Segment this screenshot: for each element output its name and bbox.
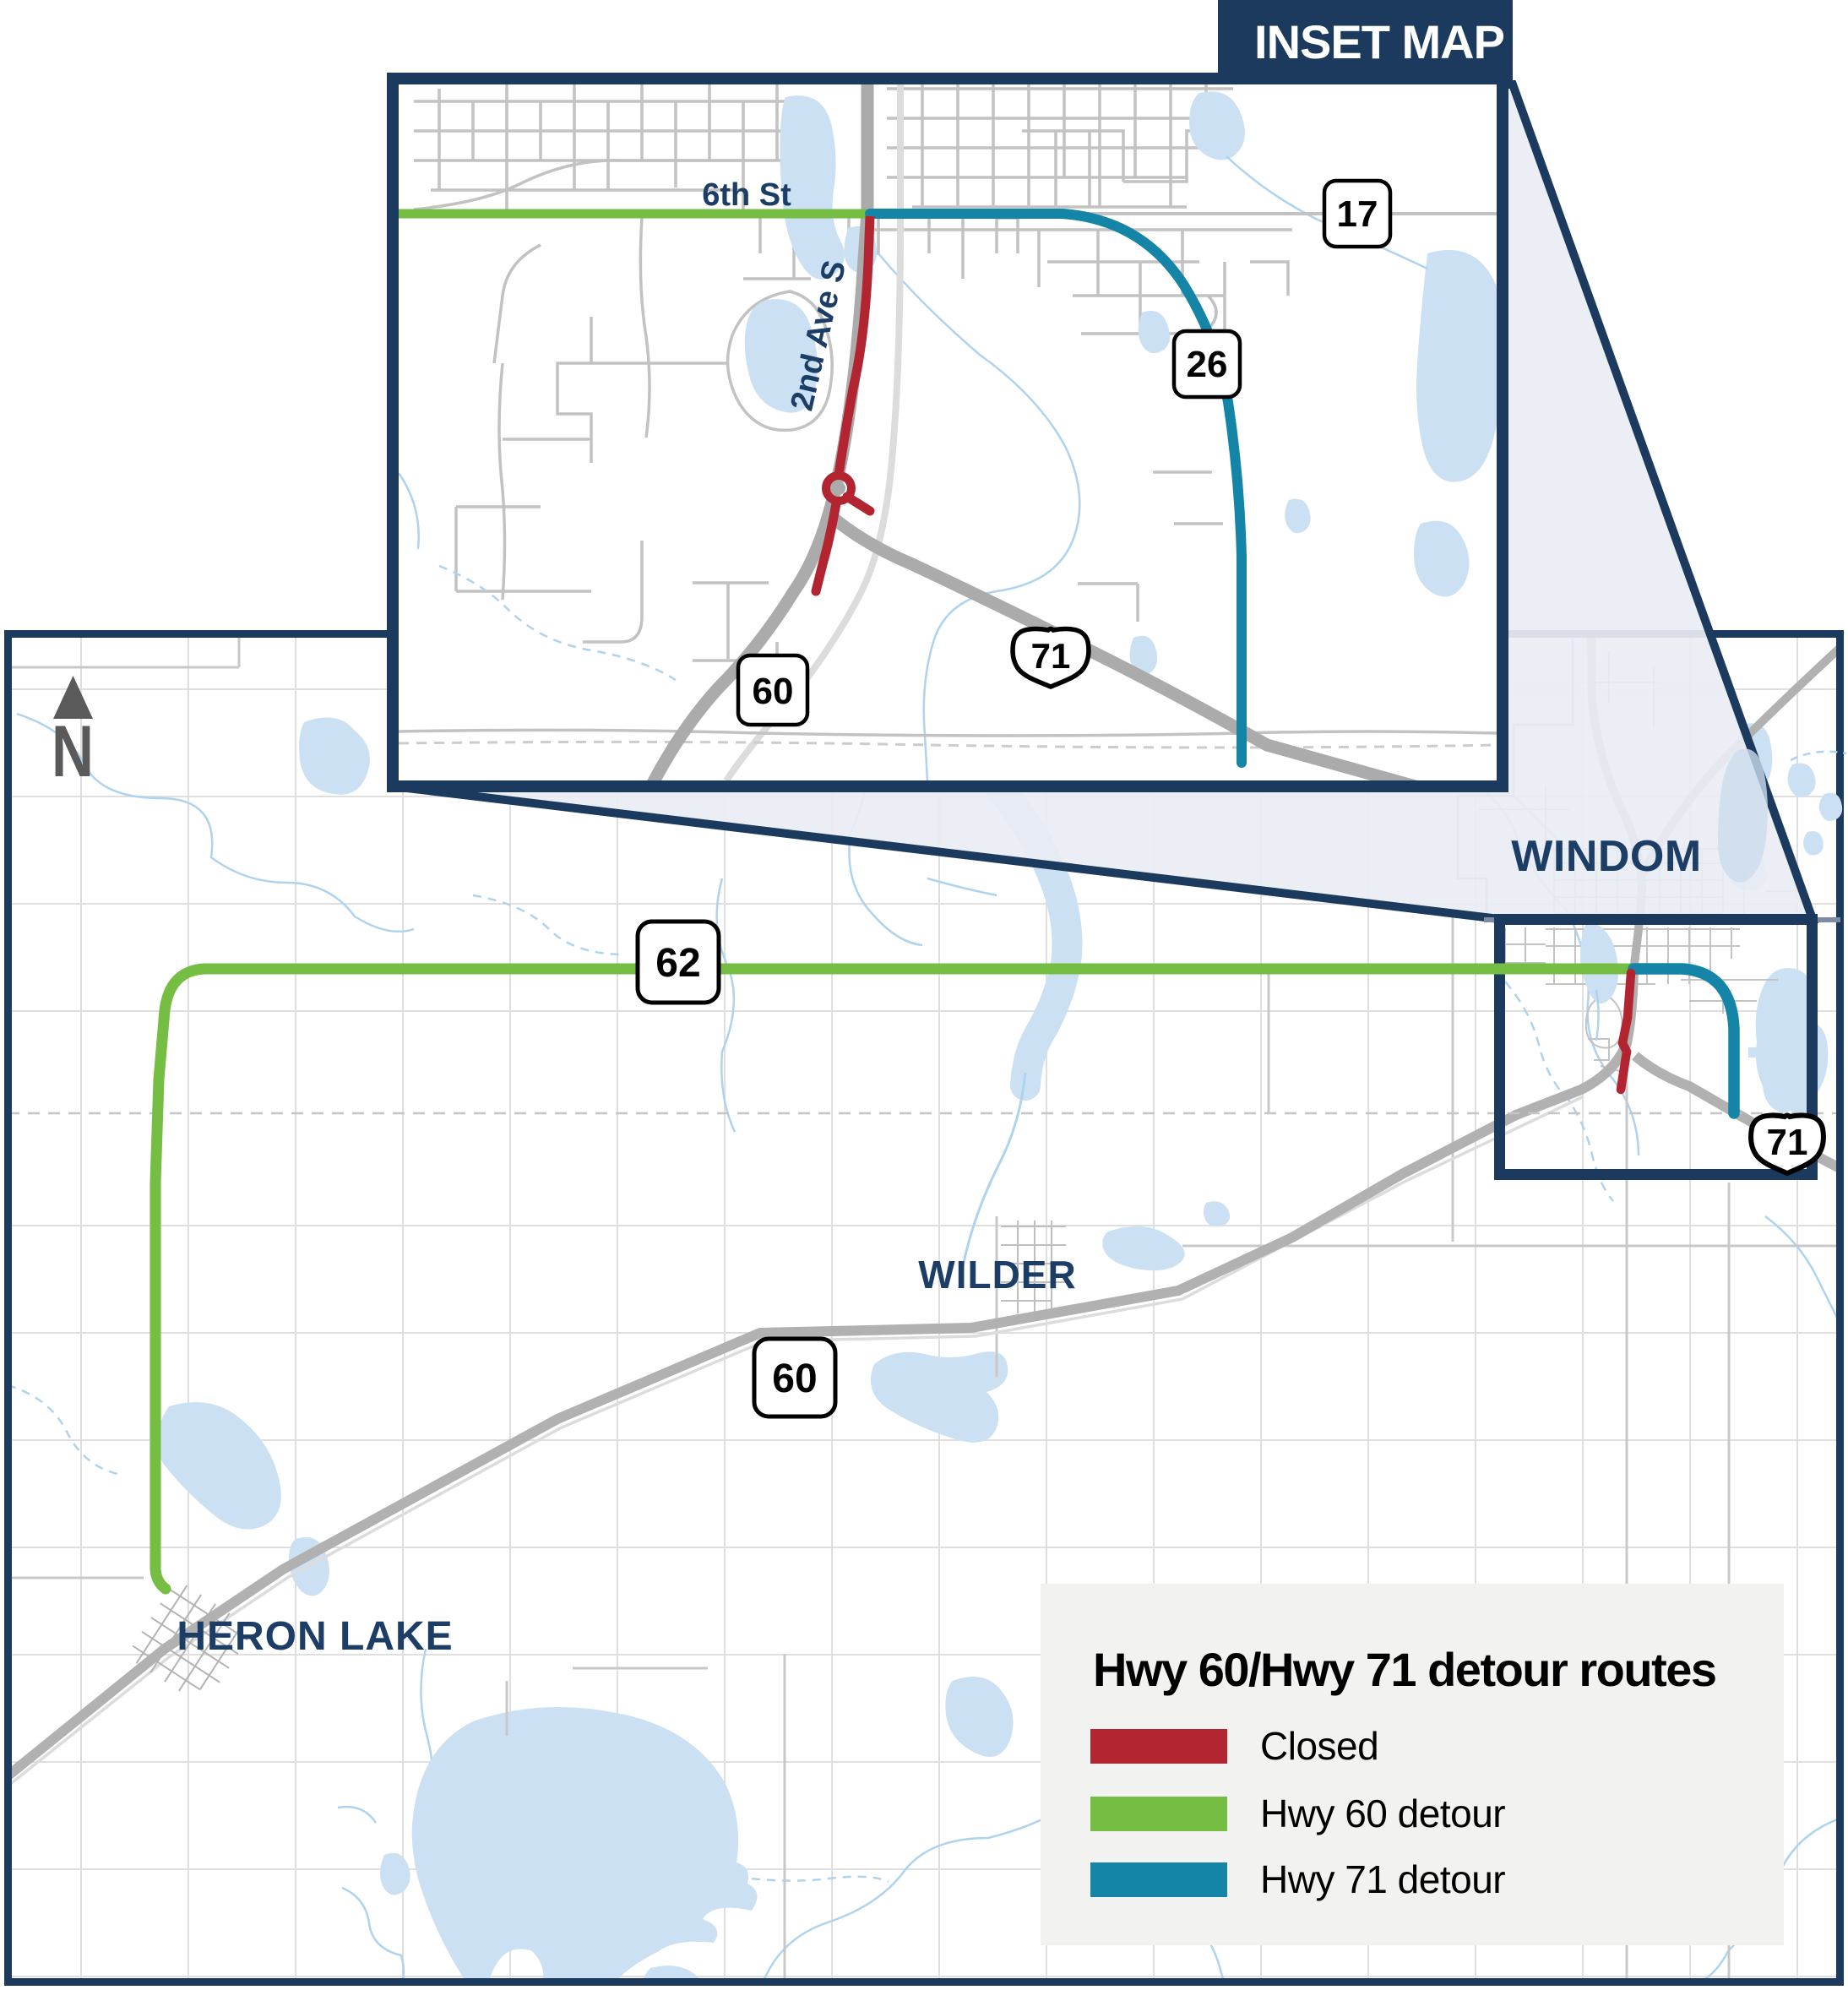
svg-text:26: 26 [1187, 344, 1228, 385]
svg-text:INSET MAP: INSET MAP [1254, 15, 1504, 68]
svg-text:60: 60 [753, 671, 794, 712]
svg-text:Hwy 60/Hwy 71 detour routes: Hwy 60/Hwy 71 detour routes [1093, 1643, 1716, 1696]
svg-text:6th St: 6th St [702, 177, 791, 213]
svg-text:17: 17 [1337, 193, 1378, 235]
svg-text:62: 62 [655, 941, 700, 986]
svg-text:HERON LAKE: HERON LAKE [177, 1614, 453, 1659]
svg-text:WINDOM: WINDOM [1511, 832, 1701, 881]
svg-text:Closed: Closed [1260, 1724, 1378, 1768]
svg-text:N: N [52, 711, 94, 792]
svg-text:Hwy 71 detour: Hwy 71 detour [1260, 1857, 1505, 1901]
svg-text:71: 71 [1031, 636, 1071, 676]
svg-text:71: 71 [1767, 1122, 1808, 1163]
svg-text:60: 60 [772, 1357, 817, 1401]
svg-text:Hwy 60 detour: Hwy 60 detour [1260, 1792, 1505, 1835]
svg-text:WILDER: WILDER [918, 1253, 1076, 1297]
